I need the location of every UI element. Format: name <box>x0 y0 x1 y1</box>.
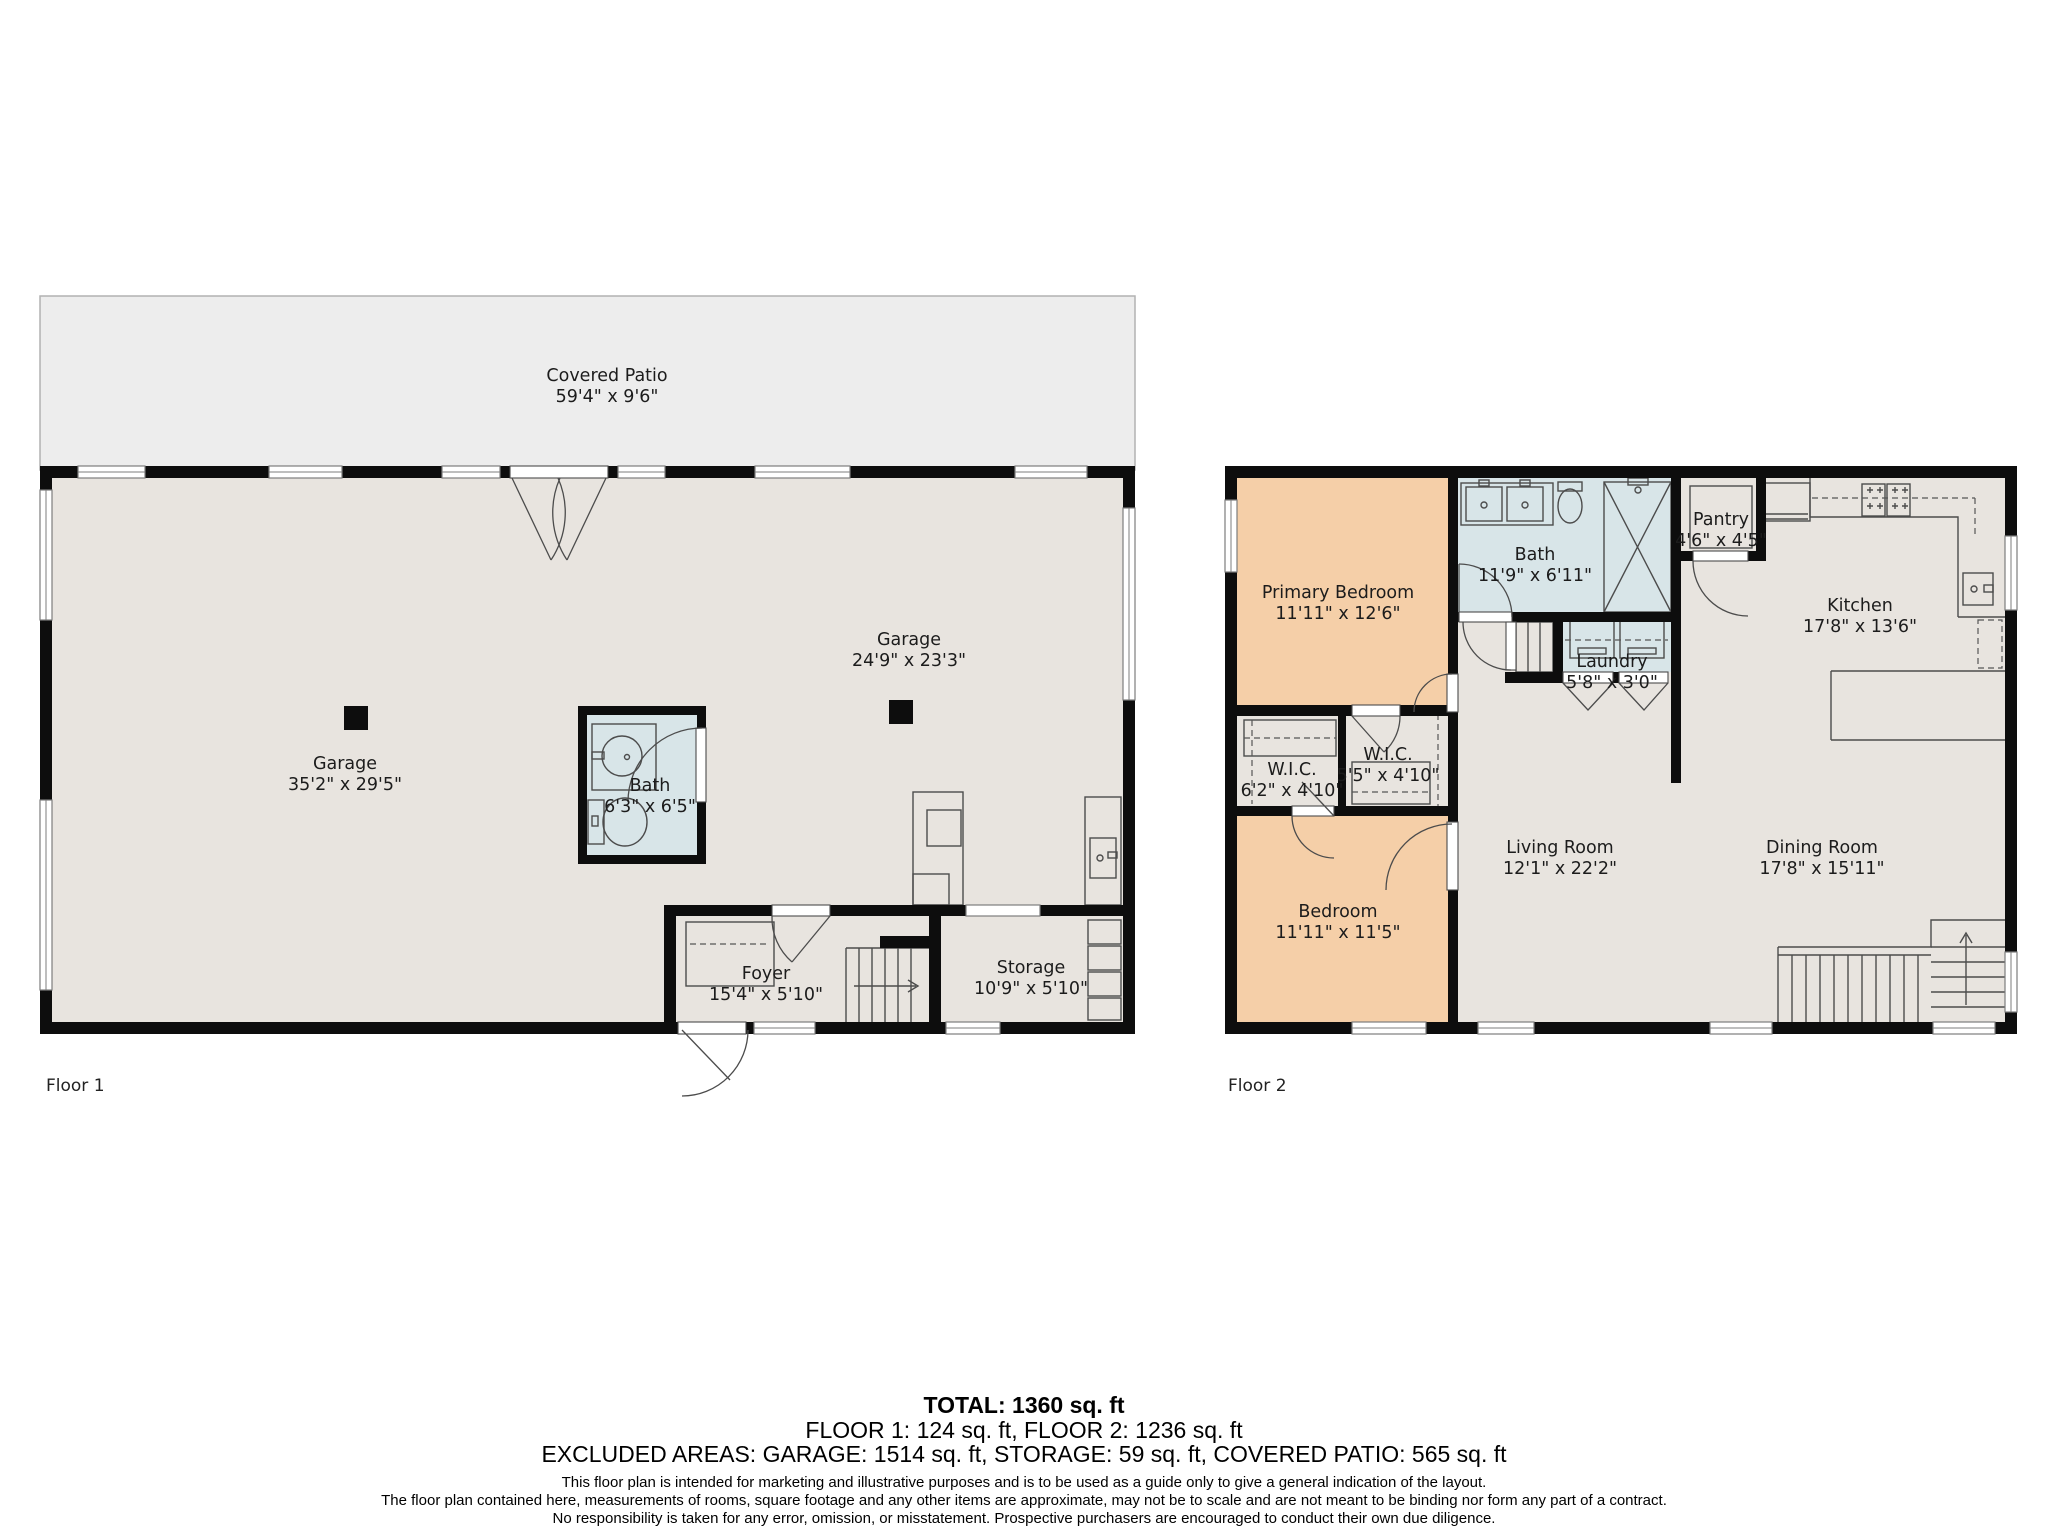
room-label-garage-side: Garage 24'9" x 23'3" <box>852 630 966 672</box>
disclaimer-line-3: No responsibility is taken for any error… <box>0 1510 2048 1528</box>
room-label-bath2: Bath 11'9" x 6'11" <box>1478 545 1592 587</box>
floor-plan-page: Covered Patio 59'4" x 9'6" Garage 35'2" … <box>0 0 2048 1536</box>
room-label-bedroom: Bedroom 11'11" x 11'5" <box>1275 902 1400 944</box>
room-label-garage-main: Garage 35'2" x 29'5" <box>288 754 402 796</box>
floor-areas-text: FLOOR 1: 124 sq. ft, FLOOR 2: 1236 sq. f… <box>0 1418 2048 1442</box>
room-label-storage: Storage 10'9" x 5'10" <box>974 958 1088 1000</box>
excluded-areas-text: EXCLUDED AREAS: GARAGE: 1514 sq. ft, STO… <box>0 1442 2048 1466</box>
floor2-caption: Floor 2 <box>1228 1076 1287 1096</box>
floor1-plan <box>40 296 1135 1096</box>
room-label-bath1: Bath 6'3" x 6'5" <box>604 776 696 818</box>
disclaimer-line-1: This floor plan is intended for marketin… <box>0 1474 2048 1492</box>
total-area-text: TOTAL: 1360 sq. ft <box>0 1392 2048 1418</box>
room-label-living-room: Living Room 12'1" x 22'2" <box>1503 838 1617 880</box>
room-label-primary-bedroom: Primary Bedroom 11'11" x 12'6" <box>1262 583 1414 625</box>
storage-opening <box>966 905 1040 916</box>
room-label-laundry: Laundry 5'8" x 3'0" <box>1566 652 1658 694</box>
garage-post-left <box>344 706 368 730</box>
room-label-wic-right: W.I.C. 5'5" x 4'10" <box>1337 745 1440 787</box>
room-label-covered-patio: Covered Patio 59'4" x 9'6" <box>546 366 667 408</box>
room-label-foyer: Foyer 15'4" x 5'10" <box>709 964 823 1006</box>
room-label-dining-room: Dining Room 17'8" x 15'11" <box>1759 838 1884 880</box>
disclaimer-text: This floor plan is intended for marketin… <box>0 1474 2048 1528</box>
room-label-pantry: Pantry 4'6" x 4'5" <box>1675 510 1767 552</box>
disclaimer-line-2: The floor plan contained here, measureme… <box>0 1492 2048 1510</box>
floor1-caption: Floor 1 <box>46 1076 105 1096</box>
room-label-wic-left: W.I.C. 6'2" x 4'10" <box>1241 760 1344 802</box>
room-label-kitchen: Kitchen 17'8" x 13'6" <box>1803 596 1917 638</box>
garage-post-right <box>889 700 913 724</box>
summary-footer: TOTAL: 1360 sq. ft FLOOR 1: 124 sq. ft, … <box>0 1392 2048 1528</box>
